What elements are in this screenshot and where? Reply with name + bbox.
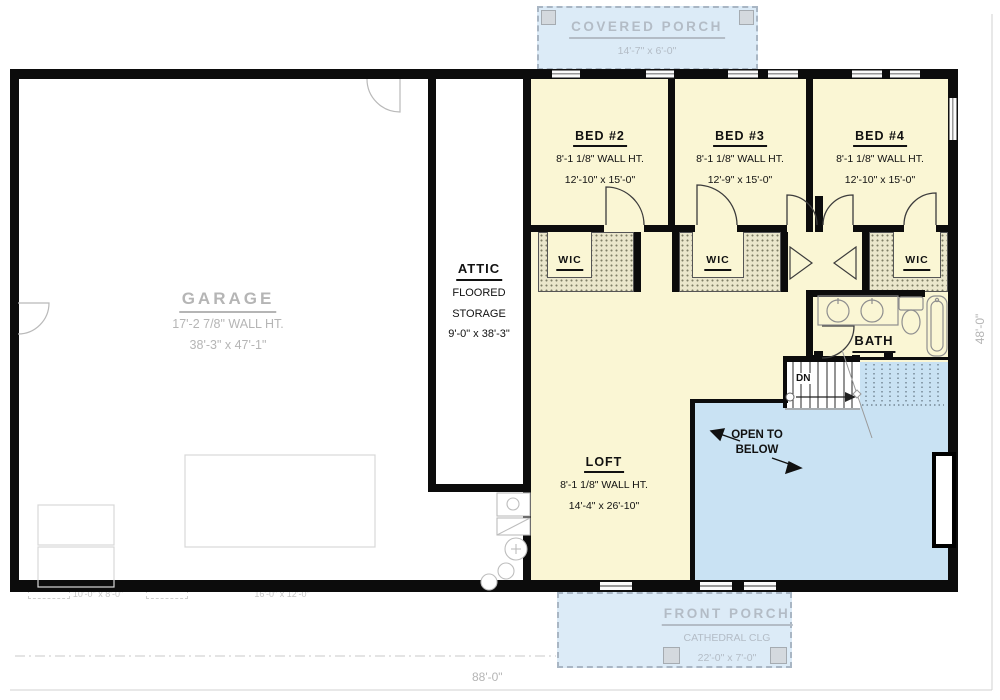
garage-wall-height: 17'-2 7/8" WALL HT. — [172, 317, 284, 331]
wall-segment — [531, 225, 604, 232]
window — [552, 69, 580, 79]
window — [852, 69, 882, 79]
window — [646, 69, 674, 79]
wic2-label: WIC — [704, 249, 731, 272]
bed4-label: BED #4 8'-1 1/8" WALL HT. 12'-10" x 15'-… — [836, 126, 924, 190]
loft-label: LOFT 8'-1 1/8" WALL HT. 14'-4" x 26'-10" — [560, 452, 648, 516]
wic3-title: WIC — [903, 254, 930, 271]
front-porch-ceiling: CATHEDRAL CLG — [684, 632, 771, 644]
wall-stair-top — [783, 356, 860, 362]
attic-label: ATTIC FLOORED STORAGE 9'-0" x 38'-3" — [448, 259, 510, 344]
attic-dims: 9'-0" x 38'-3" — [448, 328, 510, 340]
railing-line — [860, 357, 948, 360]
wall-top — [10, 69, 958, 79]
floor-plan-canvas: COVERED PORCH 14'-7" x 6'-0" FRONT PORCH… — [0, 0, 1000, 700]
wic3-label: WIC — [903, 249, 930, 272]
garage-label: GARAGE 17'-2 7/8" WALL HT. 38'-3" x 47'-… — [172, 288, 284, 356]
covered-porch-title: COVERED PORCH — [569, 18, 725, 39]
wall-bottom — [10, 580, 958, 592]
garage-dims: 38'-3" x 47'-1" — [190, 338, 267, 352]
stairs-dn-label: DN — [794, 373, 812, 384]
loft-dims: 14'-4" x 26'-10" — [569, 500, 639, 512]
front-porch-label: FRONT PORCH CATHEDRAL CLG 22'-0" x 7'-0" — [662, 604, 793, 668]
front-porch-title: FRONT PORCH — [662, 605, 793, 626]
overall-width-dim: 88'-0" — [472, 670, 503, 684]
covered-porch-label: COVERED PORCH 14'-7" x 6'-0" — [569, 17, 725, 60]
wall-segment — [672, 232, 679, 292]
bed4-dims: 12'-10" x 15'-0" — [845, 174, 915, 186]
overall-height-dim: 48'-0" — [973, 301, 987, 357]
bed4-wall-height: 8'-1 1/8" WALL HT. — [836, 153, 924, 165]
wall-segment — [644, 225, 695, 232]
front-porch-dims: 22'-0" x 7'-0" — [698, 652, 757, 664]
stair-floor — [787, 362, 860, 408]
open-below-line1: OPEN TO — [731, 429, 783, 441]
garage-faint-items — [38, 455, 375, 587]
wall-bath-top — [806, 290, 925, 297]
porch-post — [541, 10, 556, 25]
window — [768, 69, 798, 79]
bath-title: BATH — [852, 333, 895, 353]
window — [744, 580, 776, 592]
wall-loft-edge-v — [690, 399, 695, 580]
garage-title: GARAGE — [180, 288, 277, 313]
covered-porch-dims: 14'-7" x 6'-0" — [618, 45, 677, 57]
porch-post — [739, 10, 754, 25]
wall-bed2-bed3 — [668, 79, 675, 232]
wall-segment — [737, 225, 787, 232]
window-bay-right — [932, 452, 956, 548]
bath-label: BATH — [852, 331, 895, 354]
window — [728, 69, 758, 79]
wic1-title: WIC — [556, 254, 583, 271]
wic1-label: WIC — [556, 249, 583, 272]
wall-segment — [634, 232, 641, 292]
open-to-below-railing-area — [858, 362, 948, 403]
bed3-wall-height: 8'-1 1/8" WALL HT. — [696, 153, 784, 165]
bed3-label: BED #3 8'-1 1/8" WALL HT. 12'-9" x 15'-0… — [696, 126, 784, 190]
bed3-dims: 12'-9" x 15'-0" — [708, 174, 773, 186]
wall-segment — [936, 225, 948, 232]
wall-bath-left — [806, 290, 813, 362]
attic-line2: FLOORED — [452, 287, 505, 299]
bed2-title: BED #2 — [573, 128, 627, 147]
attic-line3: STORAGE — [452, 308, 506, 320]
wall-attic-bottom — [428, 484, 531, 492]
wall-attic-right — [523, 79, 531, 580]
wall-attic-left — [428, 79, 436, 491]
bed2-label: BED #2 8'-1 1/8" WALL HT. 12'-10" x 15'-… — [556, 126, 644, 190]
wall-left — [10, 69, 19, 592]
wall-segment — [853, 225, 904, 232]
wall-door-post — [815, 196, 823, 232]
wall-stair-left — [783, 362, 787, 408]
window — [948, 98, 958, 140]
bed2-wall-height: 8'-1 1/8" WALL HT. — [556, 153, 644, 165]
bed3-title: BED #3 — [713, 128, 767, 147]
attic-title: ATTIC — [456, 261, 502, 281]
wall-segment — [781, 232, 788, 292]
open-below-line2: BELOW — [736, 444, 779, 456]
loft-wall-height: 8'-1 1/8" WALL HT. — [560, 479, 648, 491]
wall-loft-edge-h — [690, 399, 788, 403]
bed2-dims: 12'-10" x 15'-0" — [565, 174, 635, 186]
open-below-label: OPEN TO BELOW — [731, 428, 783, 458]
window — [700, 580, 732, 592]
bed4-title: BED #4 — [853, 128, 907, 147]
loft-title: LOFT — [584, 454, 625, 473]
window — [890, 69, 920, 79]
wall-bed3-bed4 — [806, 79, 813, 232]
wic2-title: WIC — [704, 254, 731, 271]
window — [600, 580, 632, 592]
wall-segment — [862, 232, 869, 292]
